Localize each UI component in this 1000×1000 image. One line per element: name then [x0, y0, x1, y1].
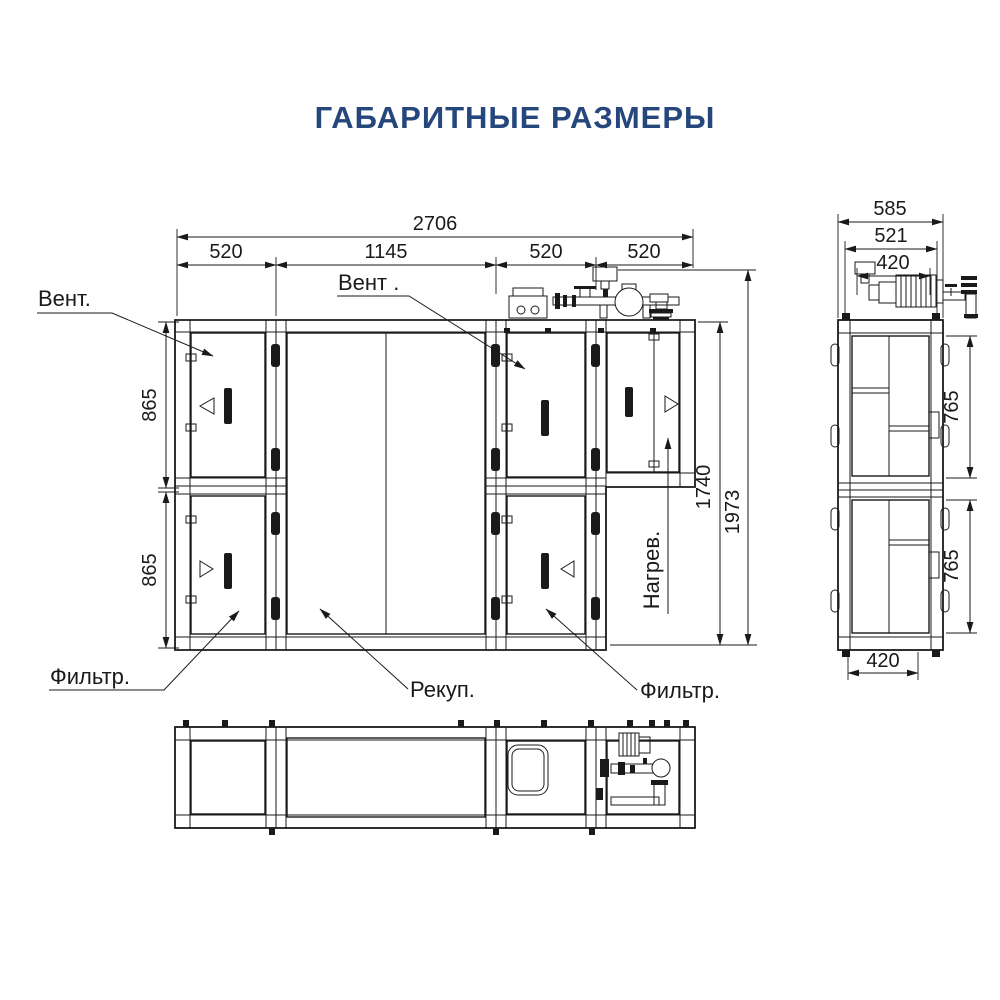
dim-side-lower-height: 765	[941, 549, 963, 582]
label-fan-left: Вент.	[38, 286, 91, 311]
page-title: ГАБАРИТНЫЕ РАЗМЕРЫ	[315, 100, 716, 135]
dim-total-width: 2706	[413, 213, 458, 235]
side-upper-panel	[852, 336, 939, 476]
heating-piping-front	[553, 267, 679, 320]
top-view	[175, 720, 695, 835]
dim-section-4: 520	[627, 241, 660, 263]
filter-door-lower-left	[186, 496, 265, 634]
dim-side-overall-width: 585	[873, 198, 906, 220]
dim-body-height: 1740	[693, 465, 715, 510]
filter-door-lower-right	[502, 496, 585, 634]
dim-section-2: 1145	[364, 241, 407, 263]
side-view	[831, 262, 978, 657]
dim-upper-height: 865	[139, 388, 161, 421]
heating-piping-side	[855, 262, 978, 318]
dim-side-upper-height: 765	[941, 390, 963, 423]
side-lower-panel	[852, 500, 939, 633]
recuperator-door	[287, 333, 485, 634]
electrical-box	[509, 288, 547, 318]
label-fan-center: Вент .	[338, 270, 399, 295]
dim-section-1: 520	[209, 241, 242, 263]
access-hatch	[508, 745, 548, 795]
label-recuperator: Рекуп.	[410, 677, 475, 702]
drawing-page: ГАБАРИТНЫЕ РАЗМЕРЫ	[0, 0, 1000, 1000]
fan-door-upper-left	[186, 333, 265, 477]
dim-lower-height: 865	[139, 553, 161, 586]
label-filter-right: Фильтр.	[640, 678, 720, 703]
dim-side-mid-width: 521	[874, 225, 907, 247]
door-latches	[271, 328, 656, 620]
label-heater: Нагрев.	[639, 531, 664, 609]
dim-overall-height: 1973	[722, 490, 744, 535]
fan-door-upper-right	[502, 333, 585, 477]
dim-side-pump-width: 420	[876, 252, 909, 274]
label-filter-left: Фильтр.	[50, 664, 130, 689]
dim-side-bottom-width: 420	[866, 650, 899, 672]
dim-section-3: 520	[529, 241, 562, 263]
top-view-tabs	[183, 720, 689, 835]
front-view	[175, 267, 695, 650]
